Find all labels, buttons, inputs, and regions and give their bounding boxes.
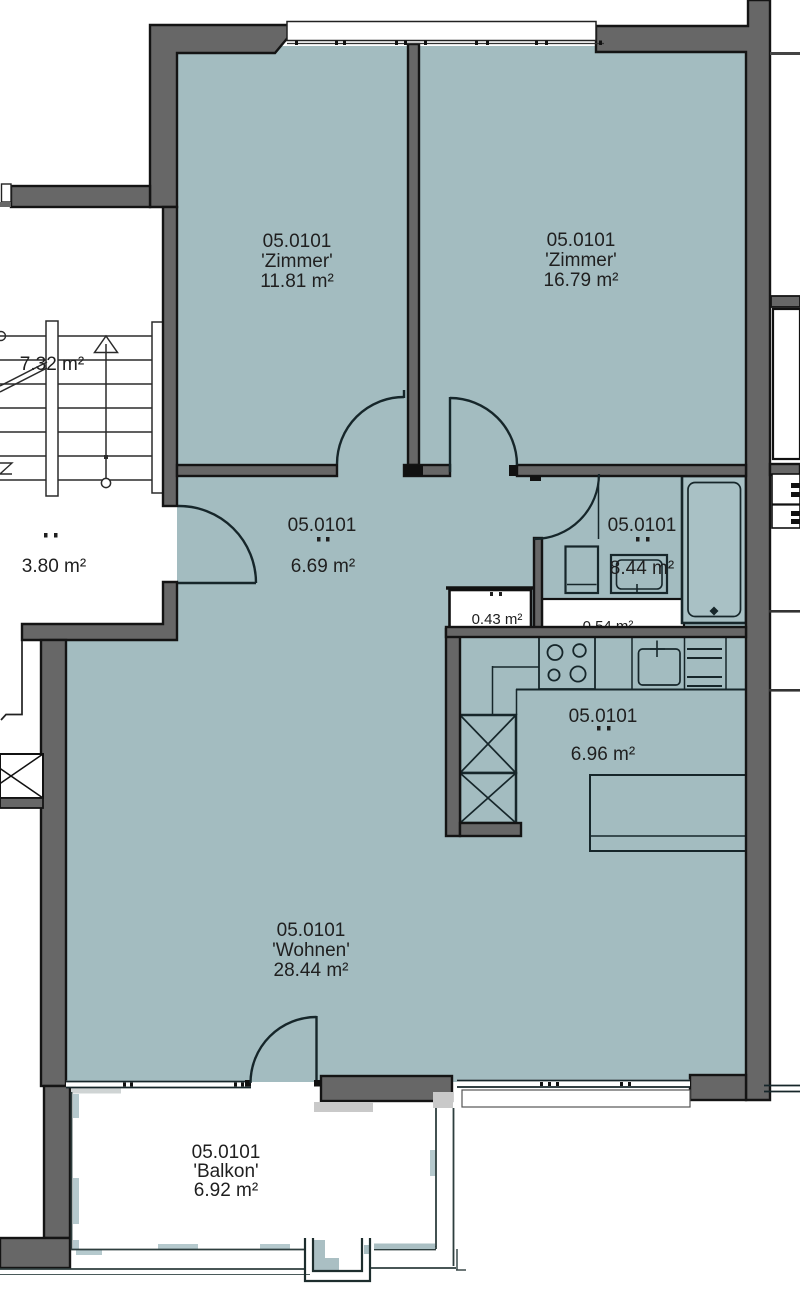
- svg-text:'Zimmer': 'Zimmer': [545, 250, 617, 271]
- svg-text:05.0101: 05.0101: [569, 706, 638, 727]
- svg-text:3.80 m²: 3.80 m²: [22, 556, 86, 577]
- svg-text:05.0101: 05.0101: [547, 230, 616, 251]
- svg-text:'Balkon': 'Balkon': [193, 1161, 258, 1182]
- svg-text:05.0101: 05.0101: [277, 920, 346, 941]
- svg-text:16.79 m²: 16.79 m²: [544, 270, 619, 291]
- svg-text:'Wohnen': 'Wohnen': [272, 940, 350, 961]
- svg-text:0.43 m²: 0.43 m²: [472, 611, 523, 628]
- svg-text:11.81 m²: 11.81 m²: [260, 271, 334, 292]
- svg-text:05.0101: 05.0101: [192, 1142, 261, 1163]
- svg-text:05.0101: 05.0101: [288, 515, 357, 536]
- svg-text:'Zimmer': 'Zimmer': [261, 251, 333, 272]
- svg-text:7.32 m²: 7.32 m²: [20, 354, 84, 375]
- svg-text:6.69 m²: 6.69 m²: [291, 556, 355, 577]
- svg-text:05.0101: 05.0101: [608, 515, 677, 536]
- svg-text:6.92 m²: 6.92 m²: [194, 1180, 258, 1201]
- svg-text:28.44 m²: 28.44 m²: [274, 960, 349, 981]
- svg-text:05.0101: 05.0101: [263, 231, 332, 252]
- svg-text:8.44 m²: 8.44 m²: [610, 558, 674, 579]
- svg-text:6.96 m²: 6.96 m²: [571, 744, 635, 765]
